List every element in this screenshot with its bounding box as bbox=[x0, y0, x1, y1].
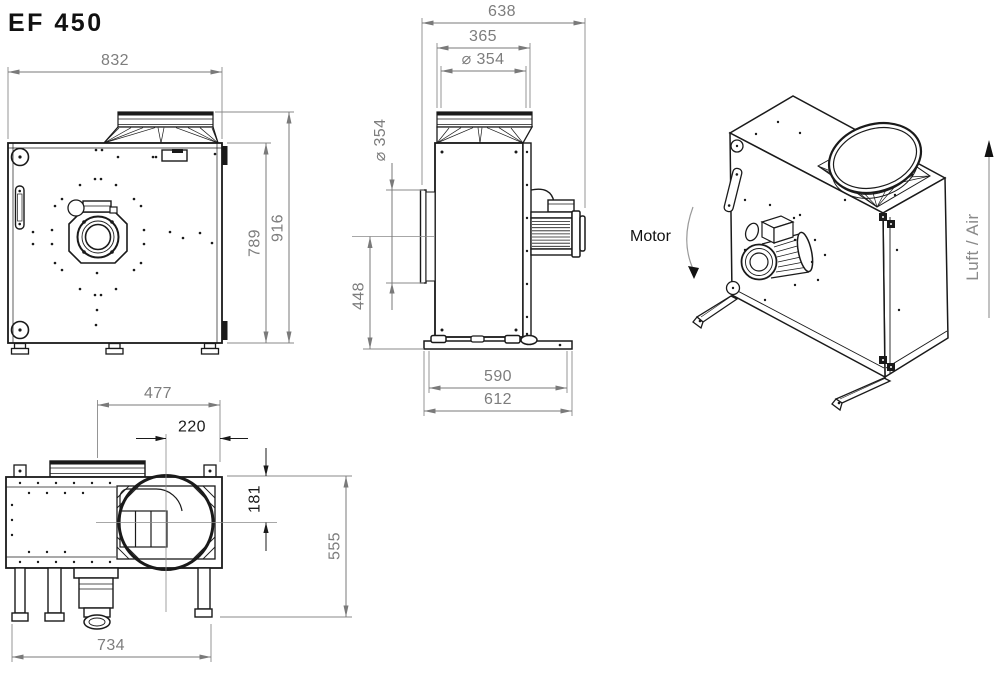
airflow-label: Luft / Air bbox=[963, 213, 982, 280]
dim-365: 365 bbox=[469, 28, 497, 45]
dim-590: 590 bbox=[484, 368, 512, 385]
front-hinge-top bbox=[222, 146, 228, 165]
front-hinge-bottom bbox=[222, 321, 228, 340]
dim-638: 638 bbox=[488, 3, 516, 20]
dim-354-left: ⌀ 354 bbox=[372, 119, 389, 162]
front-duct-collar bbox=[104, 112, 218, 143]
top-dim-220: 220 bbox=[136, 419, 248, 442]
dim-448: 448 bbox=[351, 282, 368, 310]
dim-555: 555 bbox=[327, 532, 344, 560]
dim-181: 181 bbox=[247, 485, 264, 513]
iso-right-face bbox=[883, 178, 948, 377]
iso-view: Motor Luft / Air bbox=[630, 96, 994, 410]
drawing-sheet: EF 450 832 bbox=[0, 0, 1000, 673]
page-title: EF 450 bbox=[8, 9, 104, 37]
dim-220: 220 bbox=[178, 419, 206, 436]
motor-rotation-arrow bbox=[687, 207, 699, 279]
side-front-panel bbox=[523, 143, 531, 340]
dim-354-top: ⌀ 354 bbox=[462, 51, 505, 68]
side-dims-bottom: 590 612 bbox=[424, 351, 572, 416]
motor-label: Motor bbox=[630, 228, 672, 245]
top-motor bbox=[74, 568, 118, 629]
technical-drawing: EF 450 832 bbox=[0, 0, 1000, 673]
dim-477: 477 bbox=[144, 385, 172, 402]
dim-734: 734 bbox=[97, 637, 125, 654]
airflow-indicator: Luft / Air bbox=[963, 140, 994, 318]
dim-612: 612 bbox=[484, 391, 512, 408]
dim-832: 832 bbox=[101, 52, 129, 69]
side-motor bbox=[531, 189, 585, 257]
top-duct-collar bbox=[50, 461, 145, 477]
side-duct-collar bbox=[437, 112, 532, 143]
front-feet bbox=[12, 344, 219, 355]
top-view: 477 220 181 555 73 bbox=[6, 385, 352, 662]
dim-789: 789 bbox=[247, 229, 264, 257]
front-view: 832 bbox=[8, 52, 294, 354]
top-dim-734: 734 bbox=[12, 624, 211, 662]
side-casing bbox=[435, 143, 523, 337]
dim-916: 916 bbox=[270, 214, 287, 242]
top-dim-555: 555 bbox=[220, 476, 352, 617]
side-view: 638 365 ⌀ 354 bbox=[351, 3, 586, 416]
